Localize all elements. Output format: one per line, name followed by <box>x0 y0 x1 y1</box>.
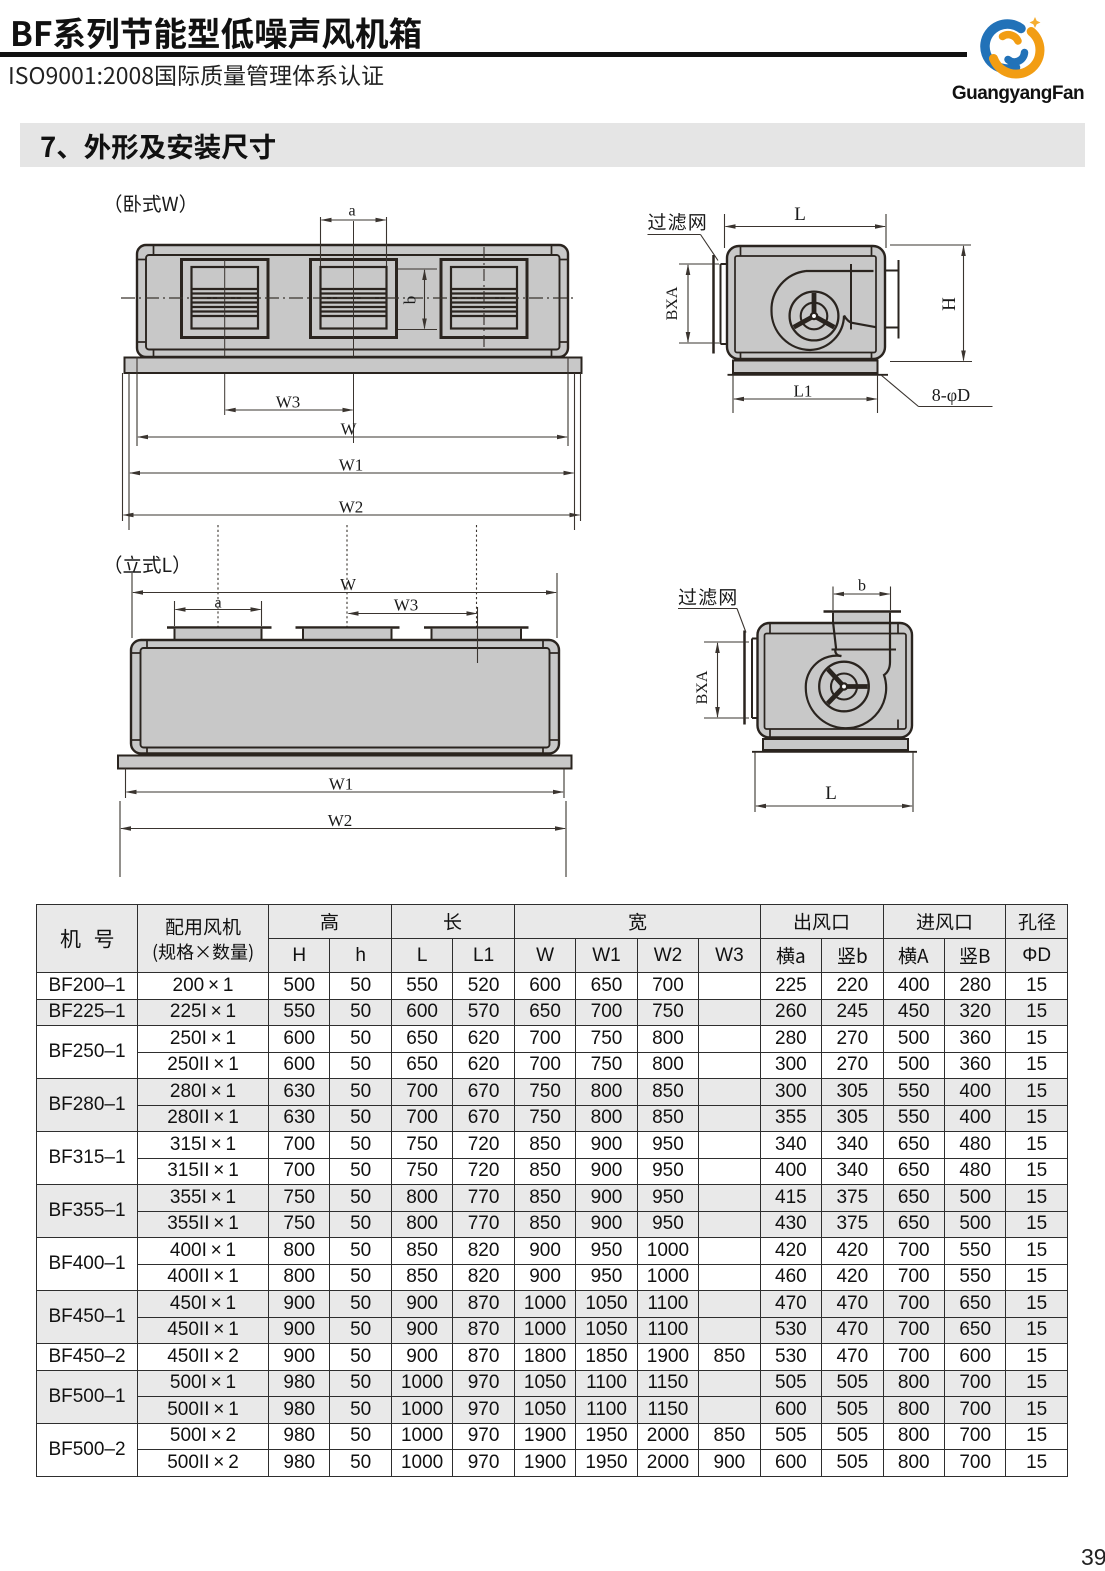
svg-text:8-φD: 8-φD <box>932 385 970 405</box>
svg-text:BXA: BXA <box>664 286 681 320</box>
svg-text:BXA: BXA <box>694 670 711 704</box>
svg-text:W3: W3 <box>276 393 301 412</box>
svg-text:W2: W2 <box>328 811 353 830</box>
svg-text:W1: W1 <box>329 775 354 794</box>
svg-text:W3: W3 <box>394 596 419 615</box>
svg-text:a: a <box>348 203 355 220</box>
svg-text:H: H <box>939 297 960 311</box>
svg-text:W2: W2 <box>339 498 364 517</box>
svg-text:L1: L1 <box>794 382 813 401</box>
svg-text:W: W <box>340 575 357 594</box>
svg-text:b: b <box>401 296 420 305</box>
svg-text:a: a <box>214 595 221 612</box>
svg-text:L: L <box>825 783 837 804</box>
svg-text:b: b <box>858 578 866 595</box>
svg-text:L: L <box>794 204 806 225</box>
svg-text:W1: W1 <box>339 456 364 475</box>
svg-text:W: W <box>340 420 357 439</box>
